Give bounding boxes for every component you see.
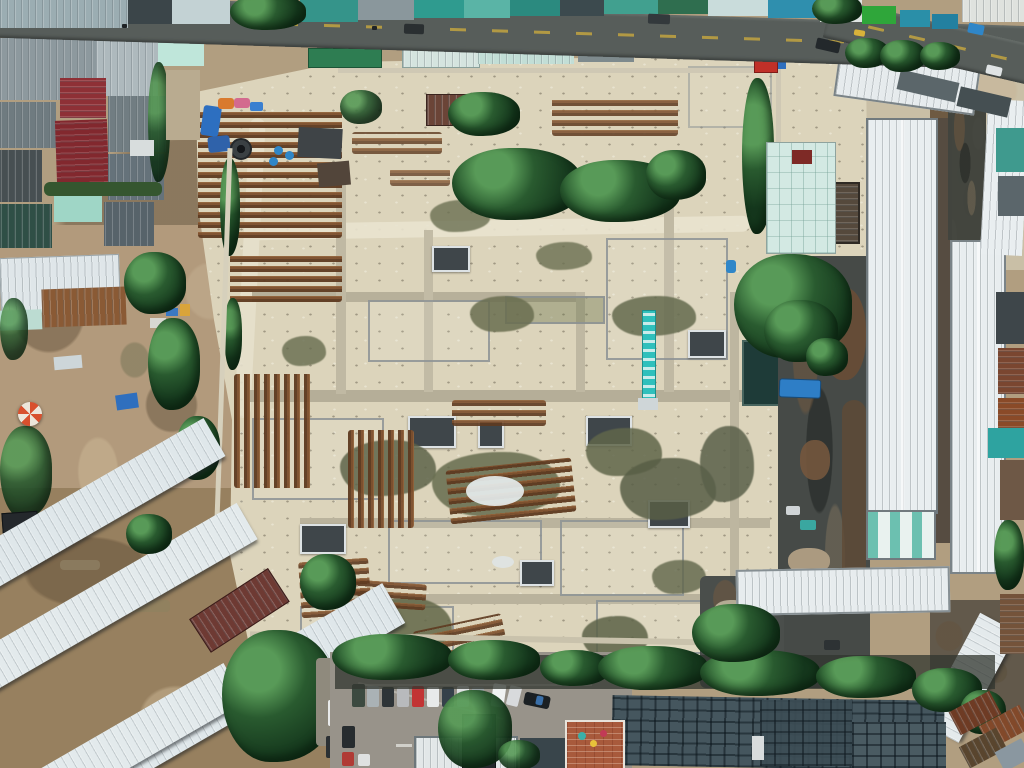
pink-tarp [234,98,250,108]
shop-roof-12 [708,0,768,16]
shop-awning-teal-2 [932,14,958,29]
wet-patch-13 [282,336,326,366]
mint-roof-red-patch [792,150,812,164]
tree-canopy-center-right-3 [806,338,848,376]
residential-alley [166,70,200,140]
blue-barrel-2 [285,151,294,160]
parking-arrow-marking [396,744,412,747]
house-white-small [130,140,154,156]
lot-rust-patch-2 [842,400,866,580]
road-truck-1 [648,14,670,25]
green-long-building [308,48,382,68]
shop-roof-4 [300,0,358,22]
market-tents-corner [962,0,1024,22]
road-car-1 [404,24,424,35]
lot-car-dark-2 [824,640,840,650]
right-edge-house-dark [996,292,1024,344]
road-motorbike-1 [122,24,127,28]
aerial-construction-site-photo [0,0,1024,768]
tree-road-south-3 [920,42,960,70]
foundation-pit-4 [300,524,346,554]
house-roof-dark [0,150,42,202]
white-shed-left-lot [53,355,82,370]
hedge-north-3 [646,150,706,200]
shop-roof-8 [510,0,560,16]
tree-row-south-1 [332,634,452,680]
tree-left-2 [148,318,200,410]
rebar-stockpile-west-2 [234,374,312,488]
water-reflection-2 [492,556,514,568]
rebar-row-center [452,400,546,426]
site-shack-1 [297,127,343,159]
shop-roof-3 [172,0,230,24]
orange-tarp [218,98,234,109]
house-roof-maroon-large [55,119,109,185]
rooftop-shaft-white [752,736,764,760]
crane-base [638,398,658,410]
shop-roof-2 [128,0,172,24]
hedge-north-5 [340,90,382,124]
foundation-pit-8 [688,330,726,358]
playground-item-red [600,730,607,737]
highrise-roof-east [852,722,946,768]
right-edge-house-gray [998,176,1024,216]
rebar-stockpile-west-1 [230,254,342,302]
house-roof-gray-3 [0,102,56,148]
wet-patch-5 [470,296,534,332]
blue-tarp-left-lot [115,393,139,411]
foundation-outline-5 [388,520,542,584]
site-wall-north [338,68,770,73]
tower-crane-boom [642,310,656,404]
highrise-roof-overlay [760,700,852,766]
warehouse-long-west [866,118,938,514]
parked-car-left-2 [342,752,354,766]
lot-debris-teal [800,520,816,530]
house-roof-red [60,78,106,118]
rebar-row-hedge [552,96,678,136]
parked-car-5 [412,686,424,707]
shop-roof-6 [414,0,464,18]
wet-patch-11 [536,242,592,270]
blue-barrel-3 [269,157,278,166]
foundation-pit-6 [432,246,470,272]
right-edge-house-rust-1 [998,348,1024,394]
water-reflection-1 [466,476,524,506]
lot-debris-white [786,506,800,515]
tree-left-edge-2 [0,298,28,360]
right-edge-trees [994,520,1024,590]
blue-barrel-4 [726,260,736,273]
right-edge-roof-bright-teal [988,428,1024,458]
site-shack-2 [317,161,351,188]
wet-patch-7 [700,426,754,502]
wet-patch-12 [652,560,706,594]
dirt-debris-1 [60,560,100,570]
parked-car-2 [367,686,379,707]
parked-car-left-3 [358,754,370,766]
cable-spool [230,138,252,160]
orange-umbrella [18,402,42,426]
tree-parking-small [498,740,540,768]
warehouse-teal-striped-section [866,510,936,560]
hedge-north-4 [448,92,520,136]
playground-item-teal [578,732,586,740]
playground-item-yellow [590,740,597,747]
shop-roof-7 [464,0,510,18]
tree-left-edge-1 [0,426,52,518]
parked-car-4 [397,687,409,707]
rebar-row-north-2 [390,168,450,186]
tree-bl-3 [126,514,172,554]
blue-tarp-2 [250,102,263,111]
rust-roof-west [41,287,126,328]
house-roof-slate [104,202,154,246]
ne-dark-yard [948,100,986,240]
lot-rust-patch-3 [800,440,830,480]
shop-roof-1 [0,0,128,28]
right-edge-house-brown [1000,460,1024,520]
parked-car-3 [382,687,394,707]
blue-bus [779,378,822,398]
tree-se-corner-site [692,604,780,662]
tree-left-1 [124,252,186,314]
tree-above-road-1 [230,0,306,30]
shop-roof-5 [358,0,414,20]
shop-awning-teal-1 [900,10,930,27]
tree-bl-2 [300,554,356,610]
right-edge-house-rust-3 [1000,594,1024,654]
tree-row-south-6 [816,656,916,698]
shop-roof-10 [604,0,658,14]
parked-car-left-1 [342,726,355,748]
shop-roof-green-bright [862,6,896,24]
shop-roof-11 [658,0,708,14]
foundation-pit-7 [520,560,554,586]
blue-barrel-1 [274,146,283,155]
right-edge-house-teal [996,128,1024,172]
parked-car-6 [427,687,439,707]
tree-row-south-2 [448,640,540,680]
road-motorbike-2 [372,26,377,30]
house-roof-teal-dark [0,204,52,248]
shop-roof-9 [560,0,604,16]
warehouse-horizontal-south [736,566,951,616]
rebar-stack-center-vertical [348,430,414,528]
tree-row-south-4 [598,646,708,690]
rebar-row-north-1 [352,132,442,154]
hedge-residential-row [44,182,162,196]
clutter-yellow [180,304,190,316]
